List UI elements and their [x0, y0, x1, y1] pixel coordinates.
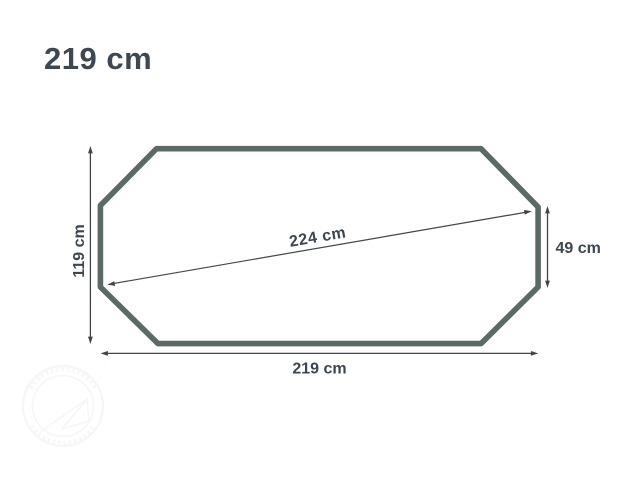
svg-text:224 cm: 224 cm	[288, 224, 347, 250]
svg-text:49 cm: 49 cm	[556, 240, 601, 257]
svg-text:219 cm: 219 cm	[44, 41, 152, 76]
svg-text:119 cm: 119 cm	[71, 224, 88, 277]
svg-text:219 cm: 219 cm	[292, 361, 346, 378]
